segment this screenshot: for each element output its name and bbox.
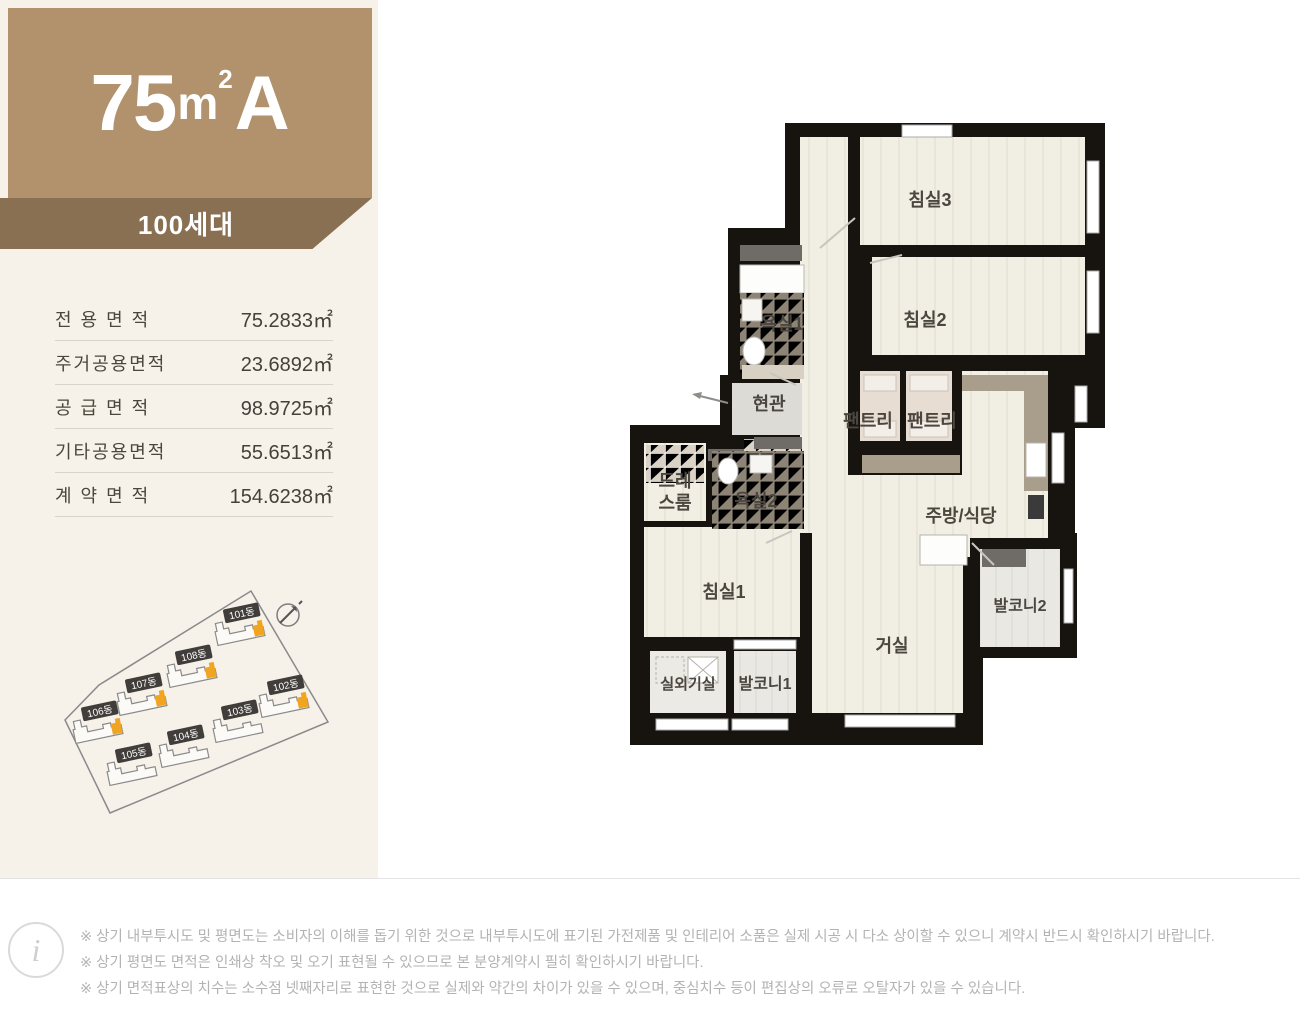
area-row-label: 전 용 면 적 (55, 306, 150, 332)
households-label: 100세대 (138, 205, 234, 242)
footer-divider (0, 878, 1300, 879)
bedroom2-floor (872, 257, 1085, 355)
window-living (845, 715, 955, 727)
area-row-value: 154.6238㎡ (230, 480, 333, 509)
label-pantry1: 팬트리 (843, 411, 893, 431)
site-building: 108동 (163, 644, 217, 687)
window-bedroom3 (1087, 161, 1099, 233)
site-building: 107동 (113, 672, 167, 715)
households-ribbon: 100세대 (0, 198, 372, 249)
unit-area-number: 75 (90, 57, 175, 149)
corridor-floor (800, 137, 848, 533)
unit-type-title: 75 m 2 A (8, 8, 372, 198)
info-icon: i (8, 922, 64, 978)
unit-area-superscript: 2 (218, 64, 232, 95)
area-row-value: 55.6513㎡ (241, 436, 333, 465)
label-balcony1: 발코니1 (738, 675, 791, 693)
pantry-bottom-wall (860, 441, 962, 455)
bath1-toilet (743, 337, 765, 365)
area-row: 계 약 면 적154.6238㎡ (55, 473, 333, 517)
site-building: 103동 (209, 699, 263, 742)
label-bath1: 욕실1 (760, 314, 803, 334)
window-top (902, 125, 952, 137)
window-kitchen (1052, 433, 1064, 483)
dining-table (920, 535, 967, 565)
site-map: 101동108동107동106동102동103동104동105동 (45, 578, 365, 823)
label-ac-room: 실외기실 (660, 675, 715, 693)
entrance-shelf (742, 365, 804, 379)
area-row-value: 23.6892㎡ (241, 348, 333, 377)
label-bedroom3: 침실3 (908, 190, 951, 210)
bath1-sink (742, 299, 762, 321)
label-entrance: 현관 (752, 394, 786, 414)
site-building: 105동 (103, 742, 157, 785)
bathtub (740, 265, 804, 293)
sidebar: 75 m 2 A 100세대 전 용 면 적75.2833㎡주거공용면적23.6… (0, 0, 378, 878)
label-dressroom-line1: 드레 (658, 471, 691, 491)
area-row-value: 98.9725㎡ (241, 392, 333, 421)
window-bedroom2 (1087, 271, 1099, 333)
area-row-label: 주거공용면적 (55, 350, 166, 376)
disclaimer-line: ※ 상기 평면도 면적은 인쇄상 착오 및 오기 표현될 수 있으므로 본 분양… (80, 950, 1290, 976)
window-corner (1075, 386, 1087, 422)
footer-notes: ※ 상기 내부투시도 및 평면도는 소비자의 이해를 돕기 위한 것으로 내부투… (80, 924, 1290, 1002)
bedroom3-floor (860, 137, 1085, 245)
bath2-shelf (754, 437, 802, 449)
compass-icon (277, 601, 302, 626)
area-row-label: 기타공용면적 (55, 438, 166, 464)
area-row: 기타공용면적55.6513㎡ (55, 429, 333, 473)
area-table: 전 용 면 적75.2833㎡주거공용면적23.6892㎡공 급 면 적98.9… (55, 297, 333, 517)
label-living: 거실 (875, 636, 908, 656)
brochure-page: { "header": { "area_number": "75", "area… (0, 0, 1300, 1029)
disclaimer-line: ※ 상기 내부투시도 및 평면도는 소비자의 이해를 돕기 위한 것으로 내부투… (80, 924, 1290, 950)
unit-area-unit: m (177, 76, 218, 130)
unit-type-letter: A (235, 60, 290, 147)
kitchen-sink (1026, 443, 1046, 477)
site-building: 102동 (255, 674, 309, 717)
pantry-divider-wall (900, 371, 906, 441)
area-row: 전 용 면 적75.2833㎡ (55, 297, 333, 341)
pantry-counter (862, 455, 960, 473)
floor-plan: 침실3 침실2 욕실1 현관 팬트리 팬트리 주방/식당 드레 스룸 욕실2 침… (620, 103, 1110, 753)
area-row-value: 75.2833㎡ (241, 304, 333, 333)
pantry1-shelf-top (864, 375, 896, 391)
label-dressroom-line2: 스룸 (658, 493, 691, 513)
bath1-cabinet (740, 245, 802, 261)
site-building: 101동 (211, 602, 265, 645)
site-boundary (65, 591, 328, 813)
area-row-label: 공 급 면 적 (55, 394, 150, 420)
window-acroom-bottom (656, 719, 728, 730)
label-balcony2: 발코니2 (993, 597, 1046, 615)
area-row: 주거공용면적23.6892㎡ (55, 341, 333, 385)
site-building: 104동 (155, 724, 209, 767)
window-balcony2 (1064, 569, 1073, 623)
window-balcony1-top (734, 640, 796, 649)
window-balcony1-bottom (732, 719, 788, 730)
area-row: 공 급 면 적98.9725㎡ (55, 385, 333, 429)
label-bedroom1: 침실1 (702, 582, 745, 602)
pantry2-shelf-top (910, 375, 948, 391)
kitchen-counter-top (962, 375, 1048, 391)
label-bedroom2: 침실2 (903, 310, 946, 330)
label-kitchen: 주방/식당 (925, 506, 997, 526)
balcony2-cabinet (982, 549, 1026, 567)
disclaimer-line: ※ 상기 면적표상의 치수는 소수점 넷째자리로 표현한 것으로 실제와 약간의… (80, 976, 1290, 1002)
area-row-label: 계 약 면 적 (55, 482, 150, 508)
label-bath2: 욕실2 (734, 491, 777, 511)
kitchen-appliance (1028, 495, 1044, 519)
bath2-toilet (718, 458, 738, 484)
bath2-sink (750, 455, 772, 473)
label-pantry2: 팬트리 (907, 411, 957, 431)
